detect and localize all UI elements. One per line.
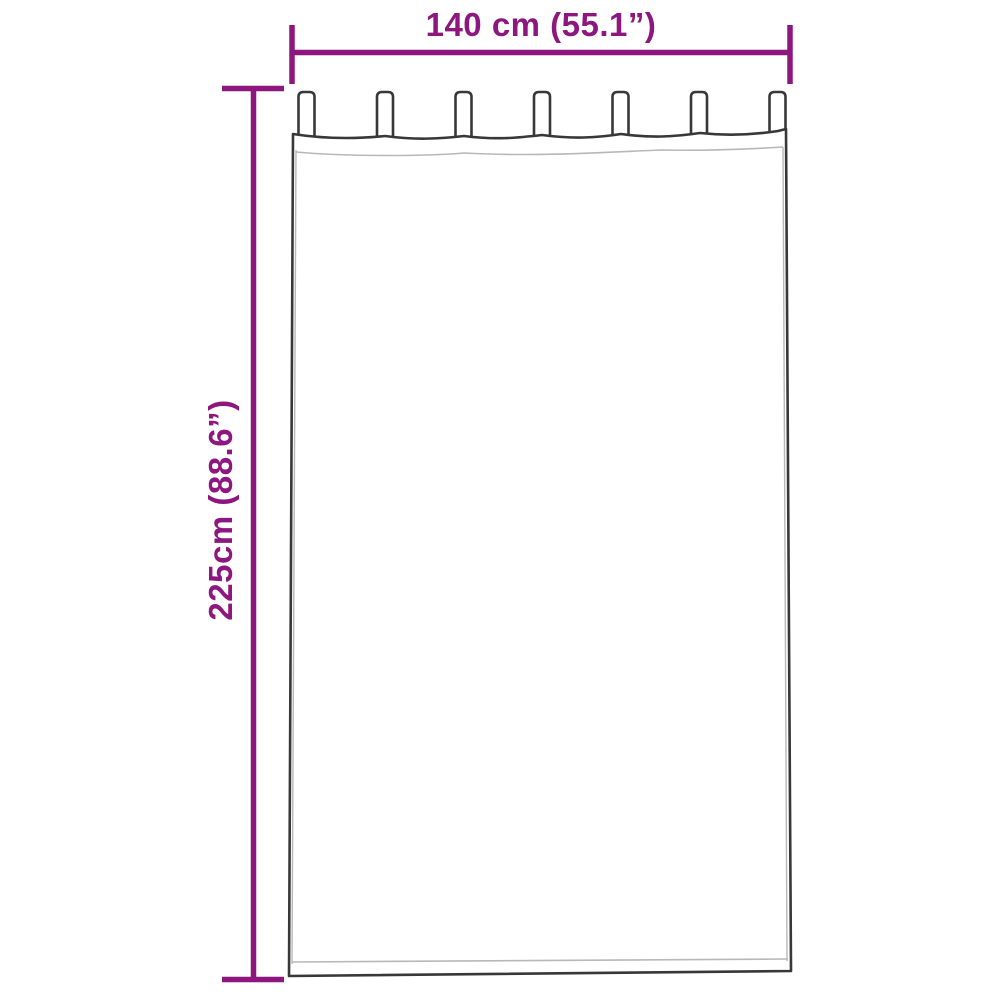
curtain-tab [299, 92, 315, 137]
curtain-drawing [289, 92, 791, 976]
curtain-tab [691, 92, 707, 137]
curtain-tab [534, 92, 550, 137]
curtain-dimension-diagram: 140 cm (55.1”) 225cm (88.6”) [0, 0, 1000, 1000]
width-dimension-label: 140 cm (55.1”) [292, 6, 790, 44]
curtain-body [289, 129, 791, 976]
diagram-svg [0, 0, 1000, 1000]
curtain-tab [613, 92, 629, 137]
curtain-tabs [299, 92, 786, 137]
height-dimension-label: 225cm (88.6”) [202, 399, 240, 620]
curtain-tab [456, 92, 472, 137]
curtain-tab [377, 92, 393, 137]
